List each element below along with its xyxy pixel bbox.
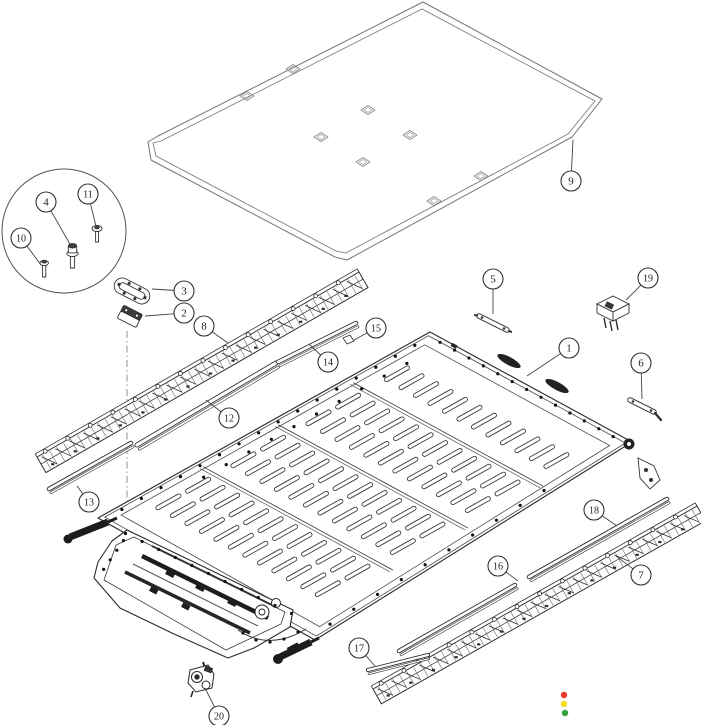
callout-2: 2 [145,303,194,323]
corner-grommet [624,439,635,450]
part-top-cover [148,2,602,260]
callout-number-5: 5 [490,274,496,286]
callout-number-10: 10 [16,234,26,245]
cover-vent-holes [240,65,488,206]
part-connector-19 [597,296,629,331]
part-screw-11 [92,226,102,243]
callout-number-4: 4 [43,197,49,209]
callout-1: 1 [527,338,579,376]
status-dot-yellow [561,701,567,707]
callout-4: 4 [36,192,71,246]
callout-17: 17 [349,638,375,666]
part-bolt-4 [67,244,78,268]
callout-number-7: 7 [638,570,644,582]
callout-5: 5 [483,269,503,314]
callout-number-9: 9 [568,176,574,188]
part-clip-15 [343,335,354,344]
callout-20: 20 [206,690,229,725]
status-dot-red [561,692,567,698]
callout-11: 11 [78,184,98,226]
callout-19: 19 [626,268,658,300]
callout-number-12: 12 [224,414,234,425]
callout-13: 13 [77,486,99,512]
corner-bracket [638,458,660,489]
callout-3: 3 [152,281,194,301]
callout-number-19: 19 [643,274,653,285]
anchor-bolt-right [273,638,319,664]
callout-10: 10 [11,228,41,265]
status-dots [561,692,568,716]
part-bolt-10 [40,260,48,277]
parts-diagram-page: 1234567891011121314151617181920 [0,0,701,725]
part-gasket-3 [111,275,152,307]
part-mount-bar-6 [630,400,661,420]
callout-number-2: 2 [181,308,187,320]
callout-18: 18 [584,500,617,526]
part-bracket-2 [117,305,142,327]
callout-16: 16 [488,556,518,581]
callout-number-8: 8 [201,321,207,333]
callout-number-13: 13 [84,498,94,509]
callout-number-16: 16 [493,562,503,573]
parts-diagram-canvas: 1234567891011121314151617181920 [0,0,701,725]
callout-number-6: 6 [638,358,644,370]
callout-14: 14 [309,344,338,372]
callout-number-20: 20 [214,712,224,723]
callout-number-18: 18 [589,506,599,517]
callout-number-11: 11 [83,190,93,201]
callout-9: 9 [561,140,581,191]
part-valve-20 [188,662,214,697]
callout-number-15: 15 [371,324,381,335]
callout-number-17: 17 [354,644,364,655]
callout-number-3: 3 [181,286,187,298]
callout-12: 12 [206,400,239,428]
anchor-bolt-left [64,518,118,544]
status-dot-green [562,710,568,716]
part-mount-bar-5 [474,315,512,332]
callout-6: 6 [631,353,651,399]
callout-8: 8 [194,316,228,343]
callout-number-1: 1 [566,343,572,355]
callout-15: 15 [354,318,386,340]
callout-number-14: 14 [323,358,333,369]
